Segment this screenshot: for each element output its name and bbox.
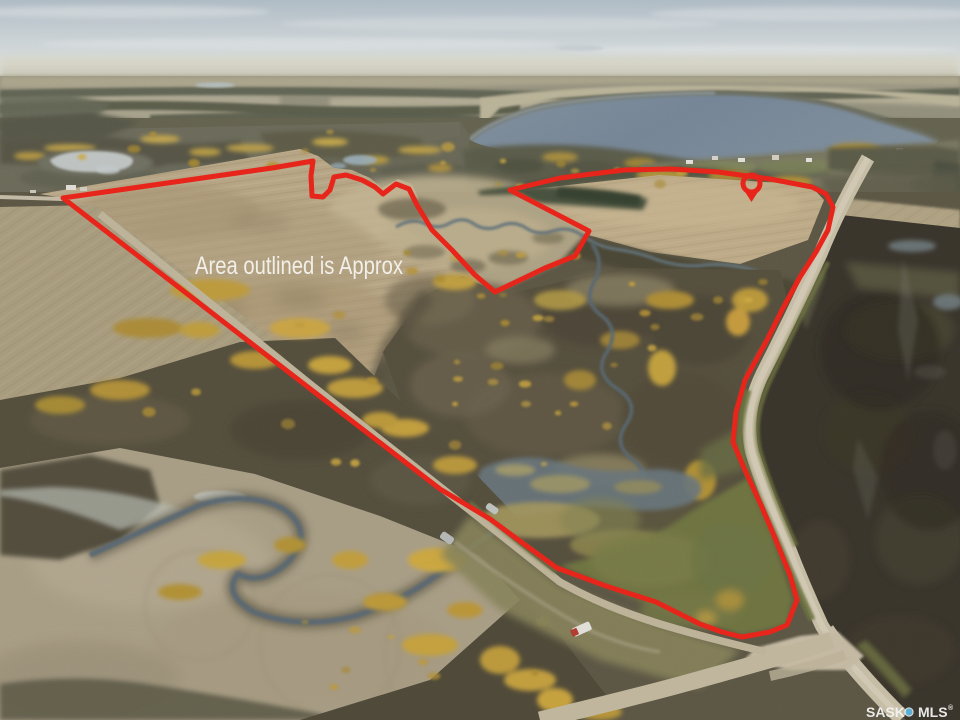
svg-text:SASK: SASK [866, 704, 905, 720]
svg-text:Area outlined is Approx: Area outlined is Approx [195, 252, 403, 280]
svg-text:MLS: MLS [918, 704, 948, 720]
svg-text:®: ® [948, 704, 954, 712]
